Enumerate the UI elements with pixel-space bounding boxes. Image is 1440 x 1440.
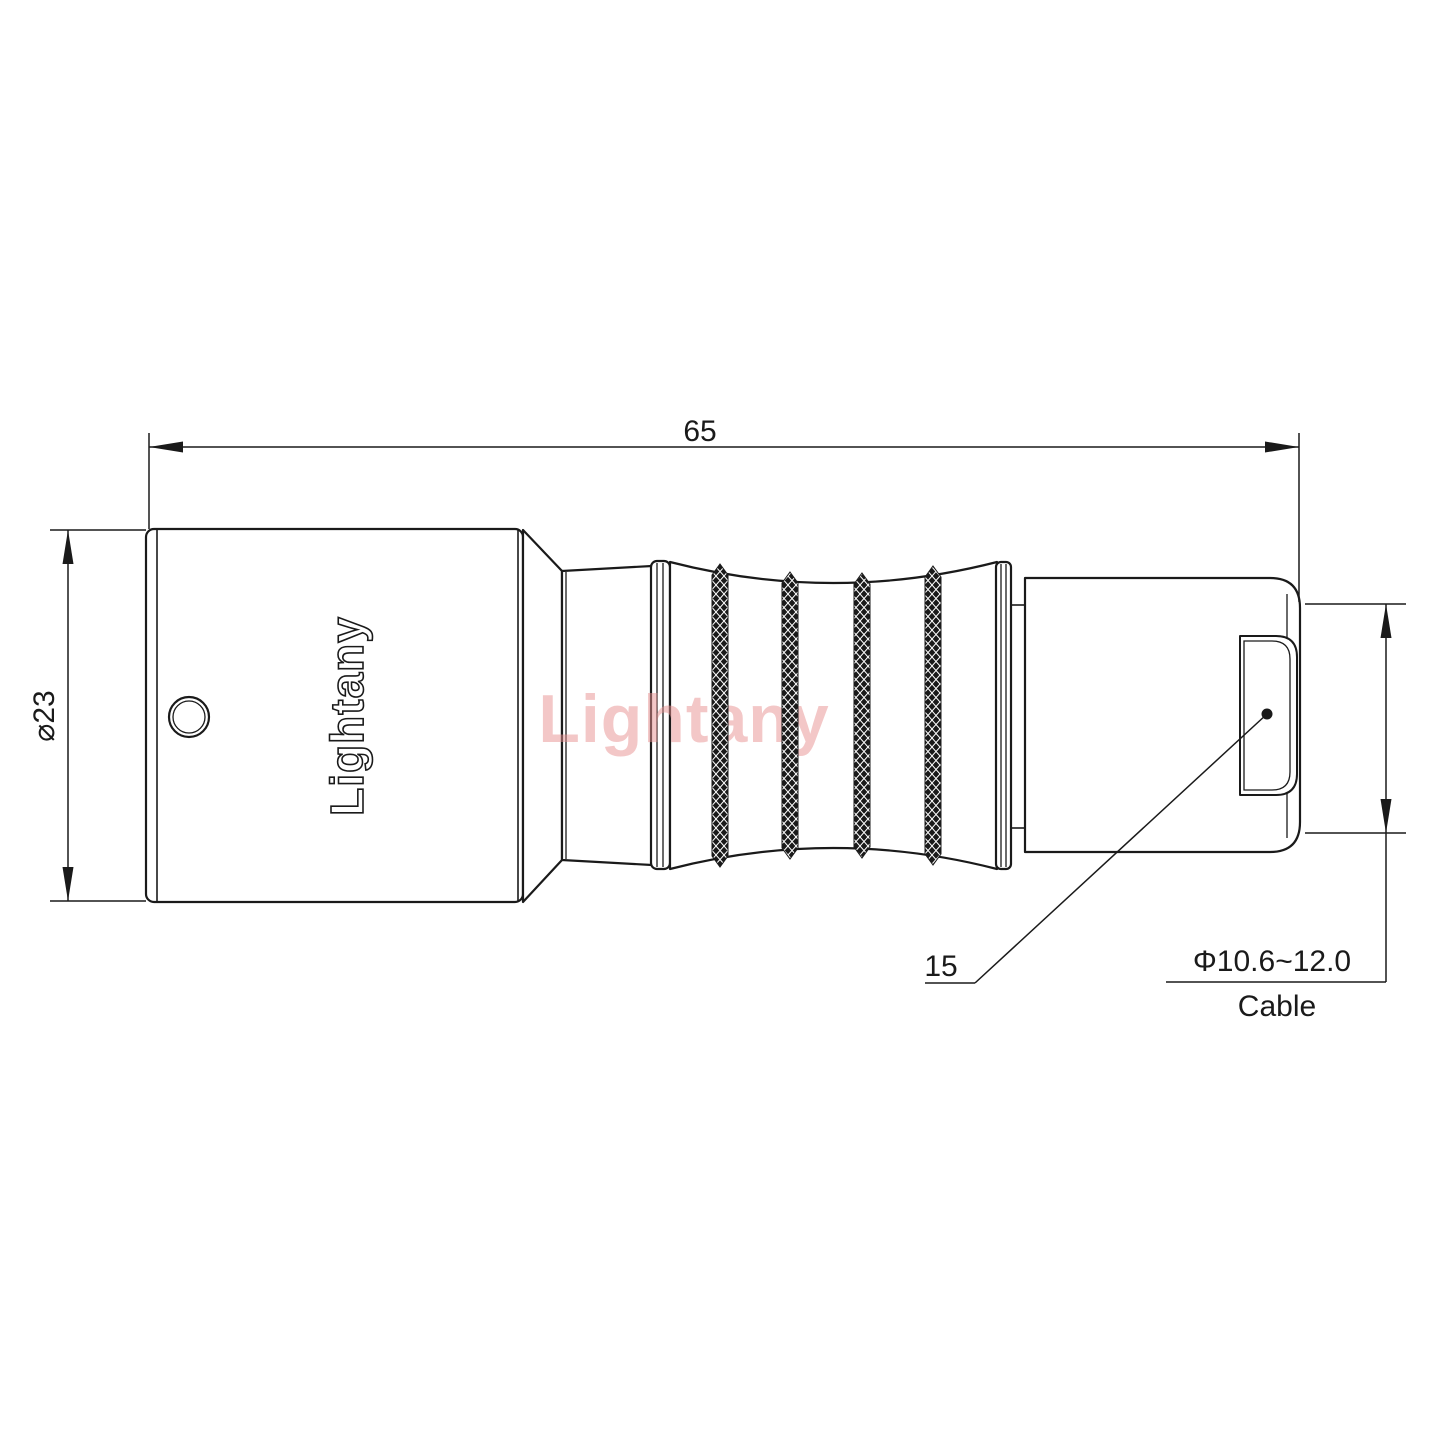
dim-overall-length-value: 65 — [683, 415, 716, 448]
arrowhead-left — [149, 442, 183, 453]
knurl-band — [712, 564, 728, 867]
knurl-band — [854, 573, 870, 858]
arrowhead-down — [63, 867, 74, 901]
knurl-band — [782, 572, 798, 859]
cable-boot — [1240, 636, 1297, 795]
dim-body-diameter-value: ⌀23 — [28, 690, 61, 741]
neck-step — [1011, 605, 1025, 828]
arrowhead-up — [1381, 604, 1392, 638]
boot-dimension-value: 15 — [924, 950, 957, 983]
technical-drawing-page: Lightany — [0, 0, 1440, 1440]
arrowhead-right — [1265, 442, 1299, 453]
cable-diameter-range: Φ10.6~12.0 — [1193, 945, 1351, 978]
ring-right-outline — [996, 562, 1011, 869]
front-shell: Lightany — [146, 529, 523, 902]
connector-technical-drawing: Lightany — [0, 0, 1440, 1440]
arrowhead-down — [1381, 799, 1392, 833]
dim-body-diameter: ⌀23 — [28, 530, 146, 901]
knurl-band — [925, 566, 941, 865]
coupling-ring-right — [996, 562, 1011, 869]
arrowhead-up — [63, 530, 74, 564]
cable-label: Cable — [1238, 990, 1316, 1023]
engraved-logo: Lightany — [321, 616, 373, 816]
